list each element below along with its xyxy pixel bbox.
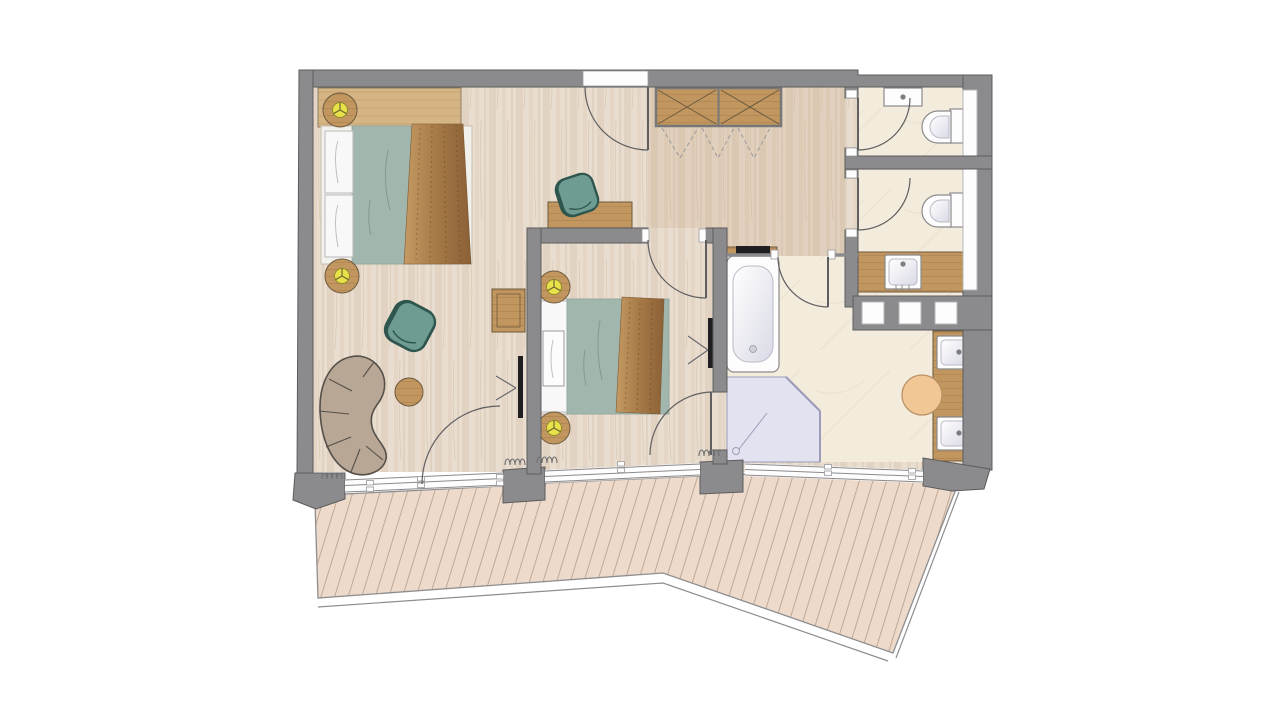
side-bench	[492, 289, 525, 332]
wc-divider-wall	[845, 156, 992, 169]
nightstand-4	[538, 412, 570, 444]
nightstand-3	[538, 271, 570, 303]
floor-plan-drawing	[0, 0, 1280, 720]
towel-niche-wall	[853, 296, 992, 330]
terrace-deck	[315, 474, 959, 661]
window-pier-2	[700, 460, 743, 494]
wc1-toilet	[922, 109, 963, 143]
bedroom2-east-stub	[713, 450, 727, 464]
east-window-2	[963, 168, 977, 290]
stool	[902, 375, 942, 415]
west-wall	[297, 70, 313, 476]
bedroom2-east-wall	[713, 228, 727, 392]
wc2-toilet	[922, 193, 963, 227]
floor-plan	[0, 0, 1280, 720]
towel-niche	[899, 302, 921, 324]
bedroom2-north-wall	[527, 228, 648, 243]
wc-west-wall-c	[845, 230, 858, 307]
bathtub	[727, 256, 779, 372]
nightstand-2	[325, 259, 359, 293]
wc2-basin	[885, 255, 921, 291]
bedroom2-west-wall	[527, 228, 541, 474]
coffee-table	[395, 378, 423, 406]
tub-tray	[736, 246, 770, 254]
towel-niche	[862, 302, 884, 324]
bed-1	[321, 124, 472, 264]
bedroom2-tv	[708, 318, 713, 368]
living-tv	[518, 356, 523, 418]
bed-runner	[404, 124, 471, 264]
east-window-1	[963, 90, 977, 156]
nightstand-1	[323, 93, 357, 127]
towel-niche	[935, 302, 957, 324]
bed-2	[538, 297, 669, 414]
wc1-sink	[884, 88, 922, 106]
